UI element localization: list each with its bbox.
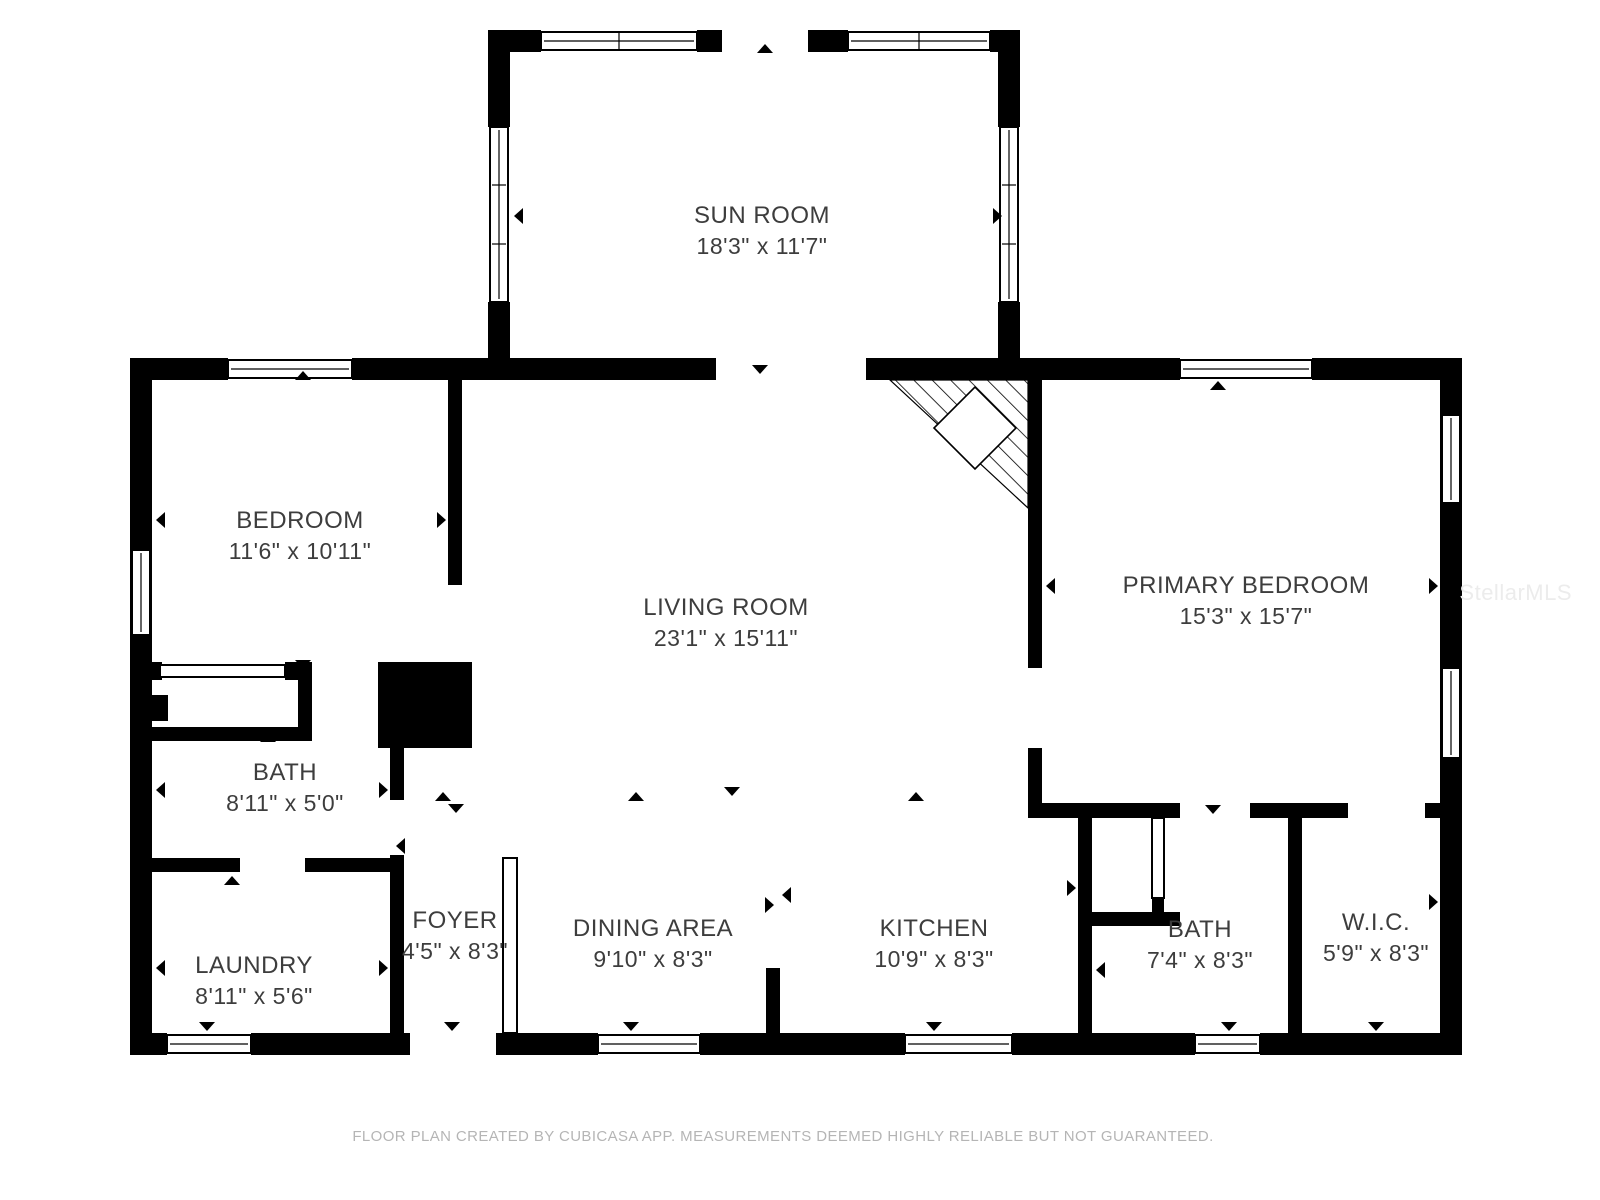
room-label-dining-area: DINING AREA 9'10" x 8'3": [573, 914, 733, 974]
room-label-living-room: LIVING ROOM 23'1" x 15'11": [643, 593, 809, 653]
wall-sunroom-left: [488, 302, 510, 380]
corner-fireplace: [890, 380, 1028, 508]
wall-bedroom-bottom: [285, 662, 312, 680]
wall-bath-laundry: [305, 858, 390, 872]
room-name: BATH: [1147, 915, 1253, 945]
room-dimensions: 5'9" x 8'3": [1323, 938, 1429, 968]
room-label-bath-2: BATH 7'4" x 8'3": [1147, 915, 1253, 975]
wall-top-exterior: [352, 358, 488, 380]
wall-bath-top: [130, 727, 312, 741]
wall-top-exterior: [130, 358, 228, 380]
wall-sunroom-living: [488, 358, 716, 380]
wall-left-exterior: [130, 358, 152, 1055]
wall-left-stub: [152, 695, 168, 721]
wall-bath-wic: [1288, 803, 1302, 1033]
wall-bottom-exterior: [251, 1033, 410, 1055]
room-name: BEDROOM: [229, 506, 372, 536]
wall-bottom-exterior: [700, 1033, 905, 1055]
closet-sliding-door: [160, 665, 285, 677]
wall-sunroom-top: [990, 30, 1020, 52]
wall-foyer-left: [390, 748, 404, 800]
room-label-primary-bedroom: PRIMARY BEDROOM 15'3" x 15'7": [1123, 571, 1370, 631]
wall-bottom-exterior: [1012, 1033, 1195, 1055]
room-name: LAUNDRY: [195, 951, 313, 981]
shower-glass-panel: [1152, 818, 1164, 898]
wall-bath-laundry: [130, 858, 240, 872]
wall-primary-bottom: [1028, 803, 1180, 818]
wall-sunroom-top: [808, 30, 848, 52]
room-name: PRIMARY BEDROOM: [1123, 571, 1370, 601]
room-dimensions: 23'1" x 15'11": [643, 623, 809, 653]
wall-primary-left: [1028, 748, 1042, 803]
room-label-bath: BATH 8'11" x 5'0": [226, 758, 344, 818]
room-dimensions: 18'3" x 11'7": [694, 231, 830, 261]
footer-disclaimer: FLOOR PLAN CREATED BY CUBICASA APP. MEAS…: [352, 1128, 1213, 1145]
wall-primary-bottom: [1425, 803, 1440, 818]
wall-sunroom-top: [697, 30, 722, 52]
room-dimensions: 15'3" x 15'7": [1123, 601, 1370, 631]
room-dimensions: 8'11" x 5'6": [195, 981, 313, 1011]
wall-bottom-exterior: [496, 1033, 598, 1055]
stellar-mls-watermark: StellarMLS: [1459, 580, 1572, 606]
wall-bedroom-living: [448, 380, 462, 585]
room-label-bedroom: BEDROOM 11'6" x 10'11": [229, 506, 372, 566]
room-label-sun-room: SUN ROOM 18'3" x 11'7": [694, 201, 830, 261]
wall-bottom-exterior: [1260, 1033, 1462, 1055]
wall-bottom-exterior: [130, 1033, 167, 1055]
room-name: DINING AREA: [573, 914, 733, 944]
wall-sunroom-top: [488, 30, 541, 52]
wall-dining-kitchen-stub: [766, 968, 780, 1033]
room-name: SUN ROOM: [694, 201, 830, 231]
room-dimensions: 8'11" x 5'0": [226, 788, 344, 818]
room-dimensions: 9'10" x 8'3": [573, 944, 733, 974]
room-name: W.I.C.: [1323, 908, 1429, 938]
room-dimensions: 4'5" x 8'3": [402, 936, 508, 966]
room-label-wic: W.I.C. 5'9" x 8'3": [1323, 908, 1429, 968]
wall-shower-stub: [1152, 897, 1164, 912]
room-label-laundry: LAUNDRY 8'11" x 5'6": [195, 951, 313, 1011]
room-label-foyer: FOYER 4'5" x 8'3": [402, 906, 508, 966]
room-label-kitchen: KITCHEN 10'9" x 8'3": [874, 914, 993, 974]
room-name: BATH: [226, 758, 344, 788]
chimney-block: [378, 662, 472, 748]
room-dimensions: 7'4" x 8'3": [1147, 945, 1253, 975]
wall-hall-stub: [298, 680, 312, 727]
room-name: FOYER: [402, 906, 508, 936]
room-dimensions: 11'6" x 10'11": [229, 536, 372, 566]
room-name: KITCHEN: [874, 914, 993, 944]
wall-primary-left: [1028, 380, 1042, 668]
floor-plan-page: SUN ROOM 18'3" x 11'7" BEDROOM 11'6" x 1…: [0, 0, 1600, 1200]
room-name: LIVING ROOM: [643, 593, 809, 623]
wall-top-exterior: [1312, 358, 1462, 380]
room-dimensions: 10'9" x 8'3": [874, 944, 993, 974]
wall-top-exterior: [866, 358, 1180, 380]
wall-sunroom-right: [998, 302, 1020, 380]
wall-kitchen-bath: [1078, 803, 1092, 1033]
